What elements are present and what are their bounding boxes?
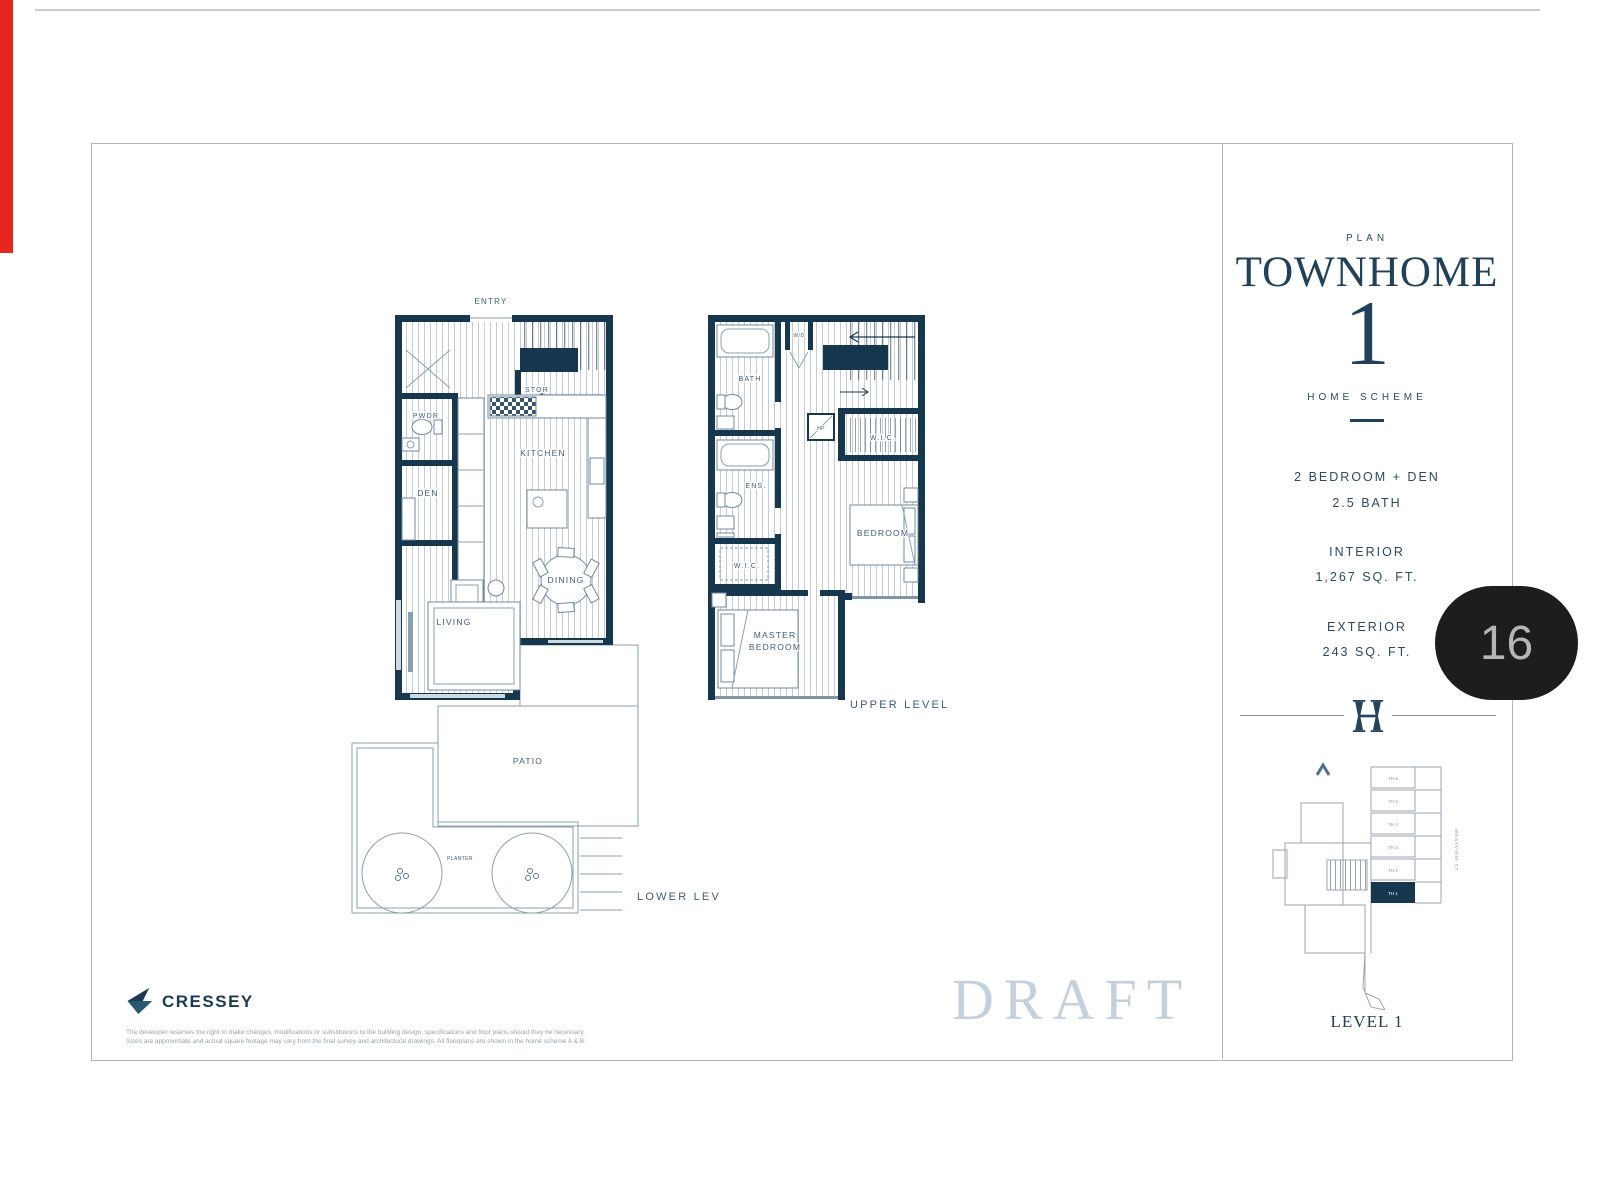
- disclaimer-line-1: The developer reserves the right to make…: [126, 1028, 606, 1037]
- lower-level-title: LOWER LEVEL: [637, 891, 720, 903]
- north-arrow-icon: [1317, 765, 1329, 775]
- page-number: 16: [1480, 616, 1533, 671]
- home-scheme-label: HOME SCHEME: [1222, 392, 1512, 403]
- bath-label: BATH: [739, 376, 762, 383]
- living-window: [396, 600, 401, 670]
- bedroom-label: BEDROOM: [857, 528, 909, 538]
- living-patio-window: [410, 694, 505, 698]
- entry-label: ENTRY: [475, 297, 508, 306]
- wd-label: W/D: [794, 333, 805, 339]
- window-top-edge: [35, 9, 1540, 11]
- hp-label: HP: [817, 426, 825, 432]
- plan-kicker: PLAN: [1222, 233, 1512, 244]
- upper-level-floorplan: BATH W/D ENS. W.I.C. HP W.I.C. BEDROOM M…: [690, 300, 970, 720]
- unit-label: TH 5: [1388, 799, 1398, 804]
- bedroom-window: [852, 596, 918, 599]
- master-label-1: MASTER: [754, 630, 797, 640]
- unit-label: TH 4: [1388, 822, 1398, 827]
- keyplan-building-outline: [1273, 767, 1441, 1010]
- den-label: DEN: [417, 488, 439, 498]
- stor-label: STOR: [525, 387, 549, 394]
- dining-label: DINING: [548, 575, 585, 585]
- interior-label: INTERIOR: [1222, 545, 1512, 559]
- patio-label: PATIO: [513, 756, 543, 766]
- page-stage: ENTRY STOR PWDR DEN KITCHEN DINING LIVIN…: [0, 0, 1600, 1200]
- unit-label: TH 2: [1388, 868, 1398, 873]
- pwdr-label: PWDR: [413, 413, 439, 420]
- living-label: LIVING: [436, 617, 471, 627]
- page-number-badge: 16: [1435, 586, 1578, 700]
- keyplan-units: TH 6 TH 5 TH 4 TH 3 TH 2 TH 1: [1371, 767, 1415, 903]
- ens-label: ENS.: [745, 483, 766, 490]
- master-label-2: BEDROOM: [749, 642, 801, 652]
- scheme-rule: [1350, 419, 1384, 422]
- cressey-brand-name: CRESSEY: [162, 992, 254, 1012]
- stair-landing: [520, 348, 578, 372]
- upper-level-title: UPPER LEVEL: [850, 699, 949, 711]
- tv-console: [408, 612, 413, 672]
- unit-label-highlighted: TH 1: [1388, 891, 1398, 896]
- street-label: WESTVIEW ST: [1454, 829, 1459, 872]
- monogram-rule-right: [1392, 715, 1496, 716]
- h-monogram-icon: [1349, 700, 1387, 732]
- master-window: [715, 696, 838, 699]
- left-edge-red-bar: [0, 0, 13, 253]
- patio-steps: [580, 838, 622, 910]
- planter-label: PLANTER: [447, 856, 473, 862]
- patio-planter: [352, 743, 622, 913]
- unit-label: TH 3: [1388, 845, 1398, 850]
- interior-area: 1,267 SQ. FT.: [1222, 570, 1512, 584]
- baths-spec: 2.5 BATH: [1222, 496, 1512, 510]
- bedrooms-spec: 2 BEDROOM + DEN: [1222, 470, 1512, 484]
- wic-left-label: W.I.C.: [734, 563, 760, 570]
- monogram-rule-left: [1240, 715, 1344, 716]
- lower-level-floorplan: ENTRY STOR PWDR DEN KITCHEN DINING LIVIN…: [340, 290, 720, 935]
- draft-watermark: DRAFT: [952, 966, 1192, 1033]
- kitchen-label: KITCHEN: [520, 448, 566, 458]
- unit-label: TH 6: [1388, 776, 1398, 781]
- kitchen-island: [527, 490, 567, 528]
- dining-window: [548, 640, 603, 643]
- disclaimer-line-2: Sizes are approximate and actual square …: [126, 1037, 606, 1046]
- plan-number: 1: [1222, 290, 1512, 377]
- keyplan-level-label: LEVEL 1: [1222, 1012, 1512, 1032]
- stair-landing: [823, 345, 888, 370]
- site-keyplan: TH 6 TH 5 TH 4 TH 3 TH 2 TH 1 WESTVIEW S…: [1265, 755, 1470, 1010]
- wic-right-label: W.I.C.: [870, 435, 896, 442]
- cressey-logo-icon: [126, 986, 158, 1016]
- den-desk: [402, 498, 415, 540]
